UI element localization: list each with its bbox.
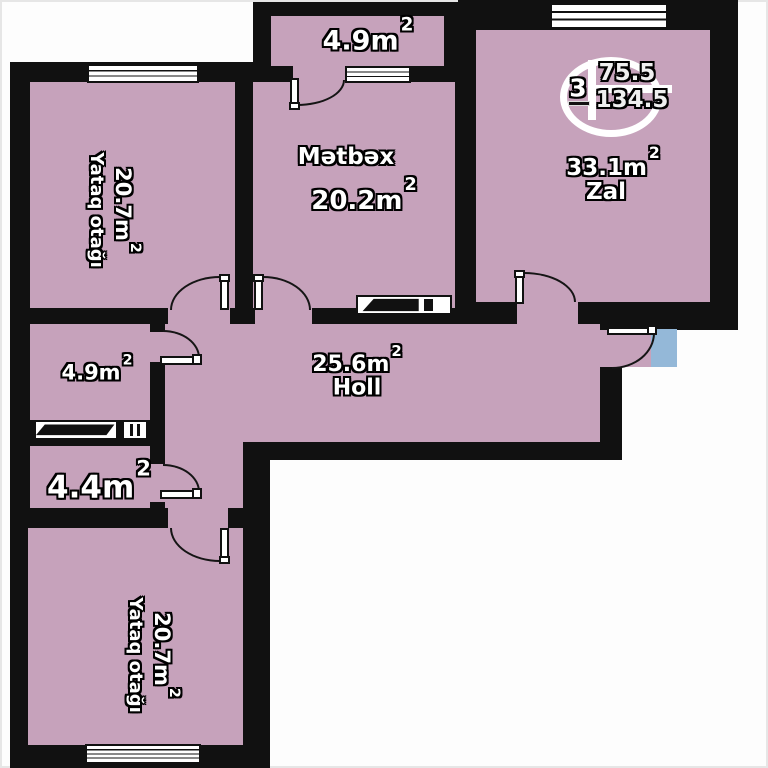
- door-hinge-balcony: [289, 102, 300, 110]
- living-name-label: Zal: [586, 179, 626, 205]
- door-hinge-bedroom-bottom: [219, 556, 230, 564]
- kitchen-area-label: 20.2m2: [311, 184, 417, 216]
- kitchen-hatch-shape: [358, 297, 450, 313]
- vent-shaft-small-bar2: [137, 424, 141, 437]
- stamp-upper-value: 75.5: [599, 60, 656, 86]
- door-hinge-living: [514, 270, 525, 278]
- door-hinge-bathroom: [192, 354, 202, 365]
- window-bedroom-bottom: [85, 744, 201, 764]
- vent-shaft-small-bar1: [130, 424, 134, 437]
- bathroom-area-label: 4.9m2: [61, 360, 132, 385]
- door-hinge-entrance: [647, 325, 657, 335]
- storage-area-label: 4.4m2: [47, 466, 151, 505]
- doorway-living: [517, 300, 578, 326]
- stamp-room-count-underline: [568, 101, 590, 106]
- window-balcony: [345, 66, 411, 83]
- living-area-label: 33.1m2: [566, 151, 660, 181]
- window-living: [550, 3, 668, 29]
- stamp-room-count: 3: [569, 74, 586, 103]
- kitchen-hatch-bar: [424, 299, 432, 311]
- balcony-area-label: 4.9m2: [323, 24, 414, 57]
- kitchen-hatch: [356, 295, 452, 315]
- door-hinge-storage: [192, 488, 202, 499]
- hall-area-label: 25.6m2: [312, 349, 402, 377]
- stamp-lower-value: 134.5: [596, 87, 669, 113]
- vent-shaft: [34, 420, 118, 440]
- bedroom-bottom-label: 20.7m2 Yataq otağı: [125, 590, 181, 720]
- kitchen-name-label: Mətbəx: [298, 144, 394, 170]
- vent-shaft-shape: [36, 422, 116, 438]
- doorway-bedroom-bottom: [168, 506, 228, 530]
- door-hinge-kitchen: [253, 274, 264, 282]
- vent-shaft-small: [122, 420, 148, 440]
- hall-name-label: Holl: [333, 376, 382, 401]
- room-hall-floor: [165, 324, 600, 442]
- bedroom-top-label: 20.7m2 Yataq otağı: [86, 145, 142, 275]
- door-hinge-bedroom-top: [219, 274, 230, 282]
- floor-plan: 3 75.5 134.5 4.9m2 Mətbəx 20.2m2 33.1m2 …: [0, 0, 768, 768]
- window-bedroom-top: [87, 64, 199, 83]
